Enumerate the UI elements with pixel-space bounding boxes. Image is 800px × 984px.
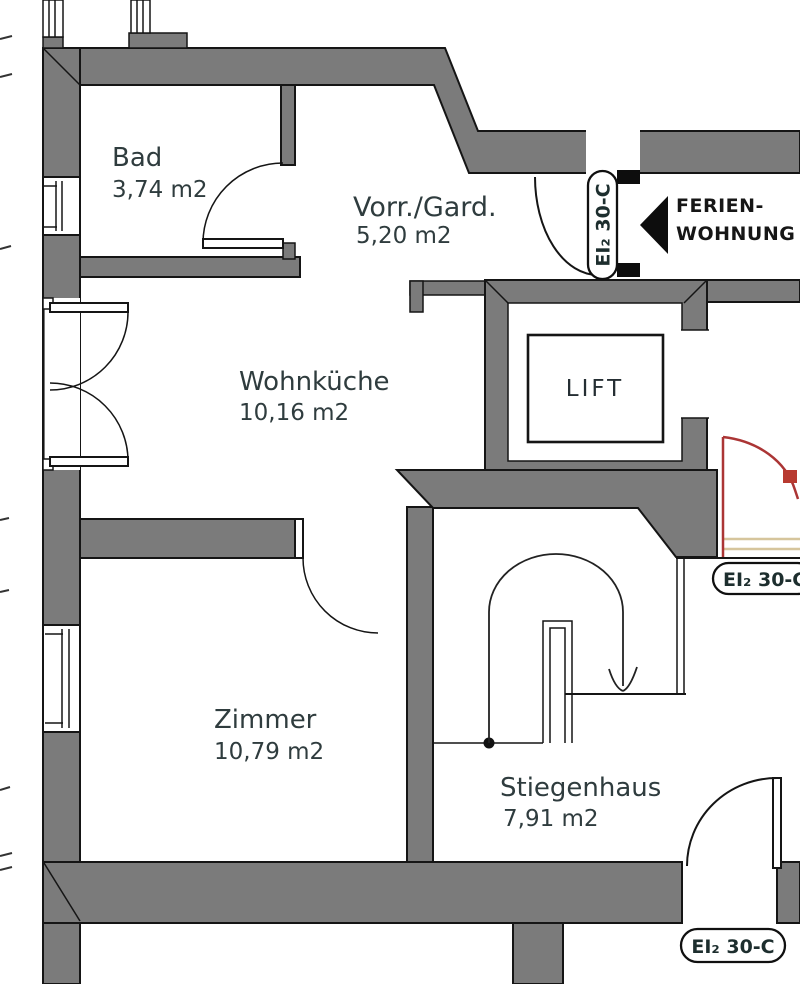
room-label-wohnkueche: Wohnküche — [239, 367, 390, 397]
zimmer-door — [295, 519, 378, 633]
room-area-bad: 3,74 m2 — [112, 177, 208, 203]
upper-neighbor-wall-block-a — [43, 37, 63, 48]
room-area-vorraum: 5,20 m2 — [356, 223, 452, 249]
zimmer-door-arc — [303, 558, 378, 633]
stair-core-outer — [543, 621, 572, 743]
bad-door-arc — [203, 163, 283, 243]
bad-bottom-wall — [80, 257, 300, 277]
double-door-leaf-top — [50, 303, 128, 312]
fire-label-corridor: EI₂ 30-C — [713, 563, 800, 594]
stair-walk-line — [489, 554, 623, 743]
unit-label-line2: WOHNUNG — [676, 223, 795, 245]
stairwell-door-leaf — [773, 778, 781, 868]
room-label-zimmer: Zimmer — [214, 705, 317, 735]
double-door-leaf-bottom — [50, 457, 128, 466]
room-label-lift: LIFT — [566, 376, 624, 402]
stair-core-inner — [550, 628, 565, 743]
bad-door-jamb — [283, 243, 295, 259]
stairwell-bottom-door — [684, 778, 781, 925]
lift-shaft — [486, 281, 710, 461]
entrance-door-post-bottom — [617, 263, 640, 277]
walls — [43, 33, 800, 984]
upper-neighbor-window — [43, 0, 150, 37]
bad-window — [43, 177, 80, 235]
unit-arrow-icon — [640, 196, 668, 254]
fire-door-arc — [723, 437, 798, 499]
fire-label-corridor-text: EI₂ 30-C — [723, 569, 800, 591]
wohnkueche-double-door — [43, 298, 128, 470]
room-area-wohnkueche: 10,16 m2 — [239, 400, 349, 426]
unit-label-line1: FERIEN- — [676, 195, 764, 217]
fire-label-entrance-text: EI₂ 30-C — [593, 183, 615, 266]
fire-label-stairwell: EI₂ 30-C — [681, 929, 785, 962]
upper-neighbor-wall-block-b — [129, 33, 187, 48]
room-label-stiegenhaus: Stiegenhaus — [500, 773, 661, 803]
corridor-top-wall-right — [707, 280, 800, 302]
zimmer-stiegenhaus-wall — [407, 507, 433, 865]
bad-vorraum-wall — [281, 85, 295, 165]
bottom-wall-left — [43, 862, 682, 923]
wohnkueche-zimmer-wall — [80, 519, 295, 558]
lift-door-opening — [681, 330, 710, 418]
bottom-wall-stub — [513, 923, 563, 984]
stairwell-door-arc — [687, 778, 777, 866]
zimmer-window — [43, 625, 80, 732]
bottom-wall-right — [777, 862, 800, 923]
fire-label-stairwell-text: EI₂ 30-C — [691, 936, 774, 958]
bad-door — [203, 163, 283, 248]
room-label-bad: Bad — [112, 143, 162, 173]
floor-plan-drawing: Bad 3,74 m2 Vorr./Gard. 5,20 m2 Wohnküch… — [0, 0, 800, 984]
stairs — [433, 554, 686, 749]
shaft-side-wall-b — [410, 281, 423, 312]
bad-door-leaf — [203, 239, 283, 248]
floor-plan: Bad 3,74 m2 Vorr./Gard. 5,20 m2 Wohnküch… — [0, 0, 800, 984]
zimmer-door-leaf — [295, 519, 303, 558]
room-area-zimmer: 10,79 m2 — [214, 739, 324, 765]
room-label-vorraum: Vorr./Gard. — [353, 192, 497, 223]
entrance-door-post-top — [617, 170, 640, 184]
stiegenhaus-top-wall — [397, 470, 717, 557]
fire-label-entrance: EI₂ 30-C — [588, 171, 617, 279]
fire-door-marker — [783, 470, 797, 483]
room-area-stiegenhaus: 7,91 m2 — [503, 806, 599, 832]
dimension-ticks — [0, 36, 12, 870]
